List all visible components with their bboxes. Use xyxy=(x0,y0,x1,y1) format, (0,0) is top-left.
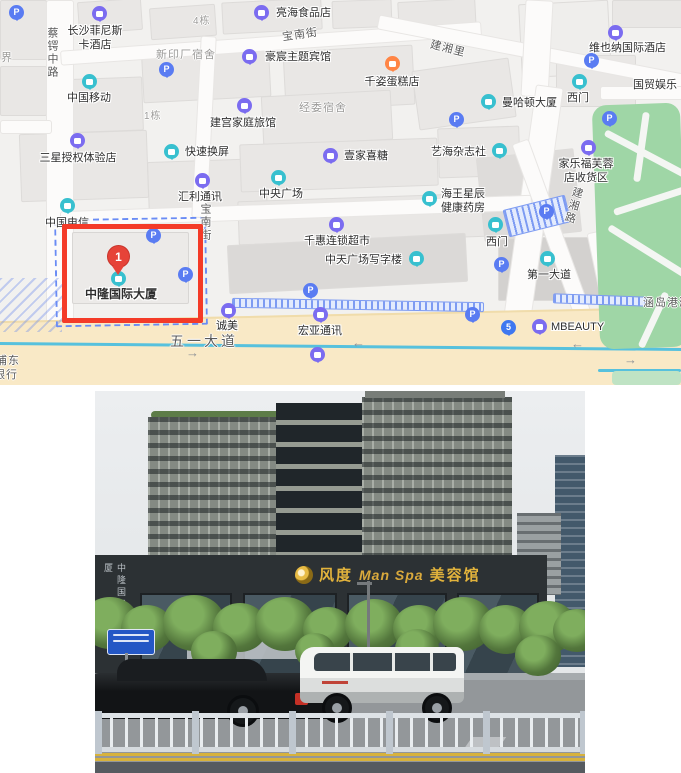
bus-stop-icon[interactable] xyxy=(310,347,325,362)
kuaisu-screen-repair-icon[interactable] xyxy=(164,144,179,159)
tower-center-core xyxy=(276,403,362,560)
map-building xyxy=(612,0,681,28)
bottom-asphalt xyxy=(95,762,585,773)
vienna-intl-hotel-label[interactable]: 维也纳国际酒店 xyxy=(589,42,666,56)
street-label: 蔡锷中路 xyxy=(44,27,60,79)
parking-icon[interactable]: P xyxy=(465,307,480,322)
vienna-intl-hotel-icon[interactable] xyxy=(608,25,623,40)
tree xyxy=(515,635,561,676)
samsung-store-label[interactable]: 三星授权体验店 xyxy=(40,152,117,166)
marker-pin[interactable]: 1 xyxy=(107,245,129,281)
mbeauty-icon[interactable] xyxy=(532,319,547,334)
china-mobile-label[interactable]: 中国移动 xyxy=(67,92,111,106)
haiwang-pharmacy-icon[interactable] xyxy=(422,191,437,206)
ximen-gate-north-label[interactable]: 西门 xyxy=(567,92,589,106)
marker-label[interactable]: 中隆国际大厦 xyxy=(85,287,157,302)
qianzi-cake-shop-icon[interactable] xyxy=(385,56,400,71)
carrefour-pickup-label[interactable]: 家乐福芙蓉 店收货区 xyxy=(559,158,614,186)
yihai-magazine-label[interactable]: 艺海杂志社 xyxy=(431,146,486,160)
street-label: 涵岛港湾 xyxy=(643,294,681,310)
jiangong-family-inn-label[interactable]: 建宫家庭旅馆 xyxy=(210,117,276,131)
hatched-zone xyxy=(0,278,62,332)
kuaisu-screen-repair-label[interactable]: 快速换屏 xyxy=(185,146,229,160)
zhongtian-office-tower-icon[interactable] xyxy=(409,251,424,266)
haochen-theme-hotel-label[interactable]: 豪宸主题宾馆 xyxy=(265,51,331,65)
spa-logo-icon xyxy=(295,566,313,584)
parking-icon[interactable]: P xyxy=(539,204,554,219)
zhongyang-plaza-icon[interactable] xyxy=(271,170,286,185)
street-label: 经委宿舍 xyxy=(299,99,347,115)
guomao-entertainment-label[interactable]: 国贸娱乐 xyxy=(633,79,677,93)
changsha-finisi-hotel-label[interactable]: 长沙菲尼斯 卡酒店 xyxy=(68,25,123,53)
parking-icon[interactable]: P xyxy=(303,283,318,298)
parking-icon[interactable]: P xyxy=(159,62,174,77)
parking-strip-road xyxy=(232,298,484,312)
parking-icon[interactable]: P xyxy=(494,257,509,272)
parking-icon[interactable]: P xyxy=(602,111,617,126)
map-building xyxy=(411,57,516,130)
map-building xyxy=(0,66,47,116)
lianghai-food-store-label[interactable]: 亮海食品店 xyxy=(276,7,331,21)
street-label: 五一大道 xyxy=(170,331,238,351)
tower-left-wing xyxy=(148,417,276,560)
street-photo: 风度 Man Spa 美容馆 中隆国际大厦 xyxy=(95,391,585,773)
jiangong-family-inn-icon[interactable] xyxy=(237,98,252,113)
street-label: 界 xyxy=(1,49,13,65)
yijia-candy-icon[interactable] xyxy=(323,148,338,163)
marker-pin-tail xyxy=(112,266,124,281)
parking-icon[interactable]: P xyxy=(9,5,24,20)
haochen-theme-hotel-icon[interactable] xyxy=(242,49,257,64)
china-mobile-icon[interactable] xyxy=(82,74,97,89)
road-direction-sign xyxy=(107,629,155,655)
qianhui-supermarket-label[interactable]: 千惠连锁超市 xyxy=(304,235,370,249)
map-building xyxy=(239,138,439,193)
qianzi-cake-shop-label[interactable]: 千姿蛋糕店 xyxy=(365,76,420,90)
haiwang-pharmacy-label[interactable]: 海王星辰 健康药房 xyxy=(441,188,485,216)
tower-right-wing xyxy=(362,397,512,560)
ximen-gate-north-icon[interactable] xyxy=(572,74,587,89)
park-area xyxy=(592,103,681,350)
manhattan-tower-label[interactable]: 曼哈顿大厦 xyxy=(502,97,557,111)
road-direction-arrow: → xyxy=(624,353,637,366)
road-direction-arrow: → xyxy=(186,346,199,359)
zhongyang-plaza-label[interactable]: 中央广场 xyxy=(259,188,303,202)
qianhui-supermarket-icon[interactable] xyxy=(329,217,344,232)
road-south-area xyxy=(0,358,681,385)
tower-roof-equipment xyxy=(365,391,505,398)
chengmei-label[interactable]: 诚美 xyxy=(216,320,238,334)
mbeauty-label[interactable]: MBEAUTY xyxy=(551,321,604,335)
chengmei-icon[interactable] xyxy=(221,303,236,318)
ximen-gate-mid-icon[interactable] xyxy=(488,217,503,232)
changsha-finisi-hotel-icon[interactable] xyxy=(92,6,107,21)
guardrail-fence xyxy=(95,713,585,755)
china-telecom-icon[interactable] xyxy=(60,198,75,213)
map-road xyxy=(520,0,553,98)
manhattan-tower-icon[interactable] xyxy=(481,94,496,109)
sign-brand: 风度 xyxy=(319,564,353,585)
street-label: 1栋 xyxy=(144,107,162,122)
huili-telecom-icon[interactable] xyxy=(195,173,210,188)
yellow-road-line2 xyxy=(95,758,585,761)
parking-icon[interactable]: P xyxy=(449,112,464,127)
hongya-telecom-label[interactable]: 宏亚通讯 xyxy=(298,325,342,339)
light-pole-arm xyxy=(357,582,372,585)
street-label: 新印厂宿舍 xyxy=(156,46,216,62)
map-container[interactable]: 1 中隆国际大厦 蔡锷中路界宝南街宝南街建湘里建湘路五一大道新印厂宿舍经委宿舍4… xyxy=(0,0,681,385)
carrefour-pickup-icon[interactable] xyxy=(581,140,596,155)
lianghai-food-store-icon[interactable] xyxy=(254,5,269,20)
ximen-gate-mid-label[interactable]: 西门 xyxy=(486,236,508,250)
street-label: 4栋 xyxy=(193,12,211,27)
screenshot-root: { "map": { "marker": {"number": "1", "la… xyxy=(0,0,681,773)
diyi-avenue-icon[interactable] xyxy=(540,251,555,266)
map-road xyxy=(0,120,52,134)
metro-line5-icon[interactable]: 5 xyxy=(501,320,516,335)
diyi-avenue-label[interactable]: 第一大道 xyxy=(527,269,571,283)
sign-suffix: 美容馆 xyxy=(430,564,481,585)
yihai-magazine-icon[interactable] xyxy=(492,143,507,158)
samsung-store-icon[interactable] xyxy=(70,133,85,148)
street-label: 银行 xyxy=(0,366,18,382)
park-area-south xyxy=(612,371,681,385)
huili-telecom-label[interactable]: 汇利通讯 xyxy=(178,191,222,205)
highlight-rectangle xyxy=(62,224,203,323)
parking-strip-road2 xyxy=(553,293,647,306)
hongya-telecom-icon[interactable] xyxy=(313,307,328,322)
yijia-candy-label[interactable]: 壹家喜糖 xyxy=(344,150,388,164)
marker-number: 1 xyxy=(107,245,130,268)
white-van xyxy=(300,641,464,713)
road-direction-arrow: ← xyxy=(352,336,365,349)
zhongtian-office-tower-label[interactable]: 中天广场写字楼 xyxy=(325,254,402,268)
storefront-sign: 风度 Man Spa 美容馆 xyxy=(295,564,481,585)
road-direction-arrow: ← xyxy=(571,337,584,350)
